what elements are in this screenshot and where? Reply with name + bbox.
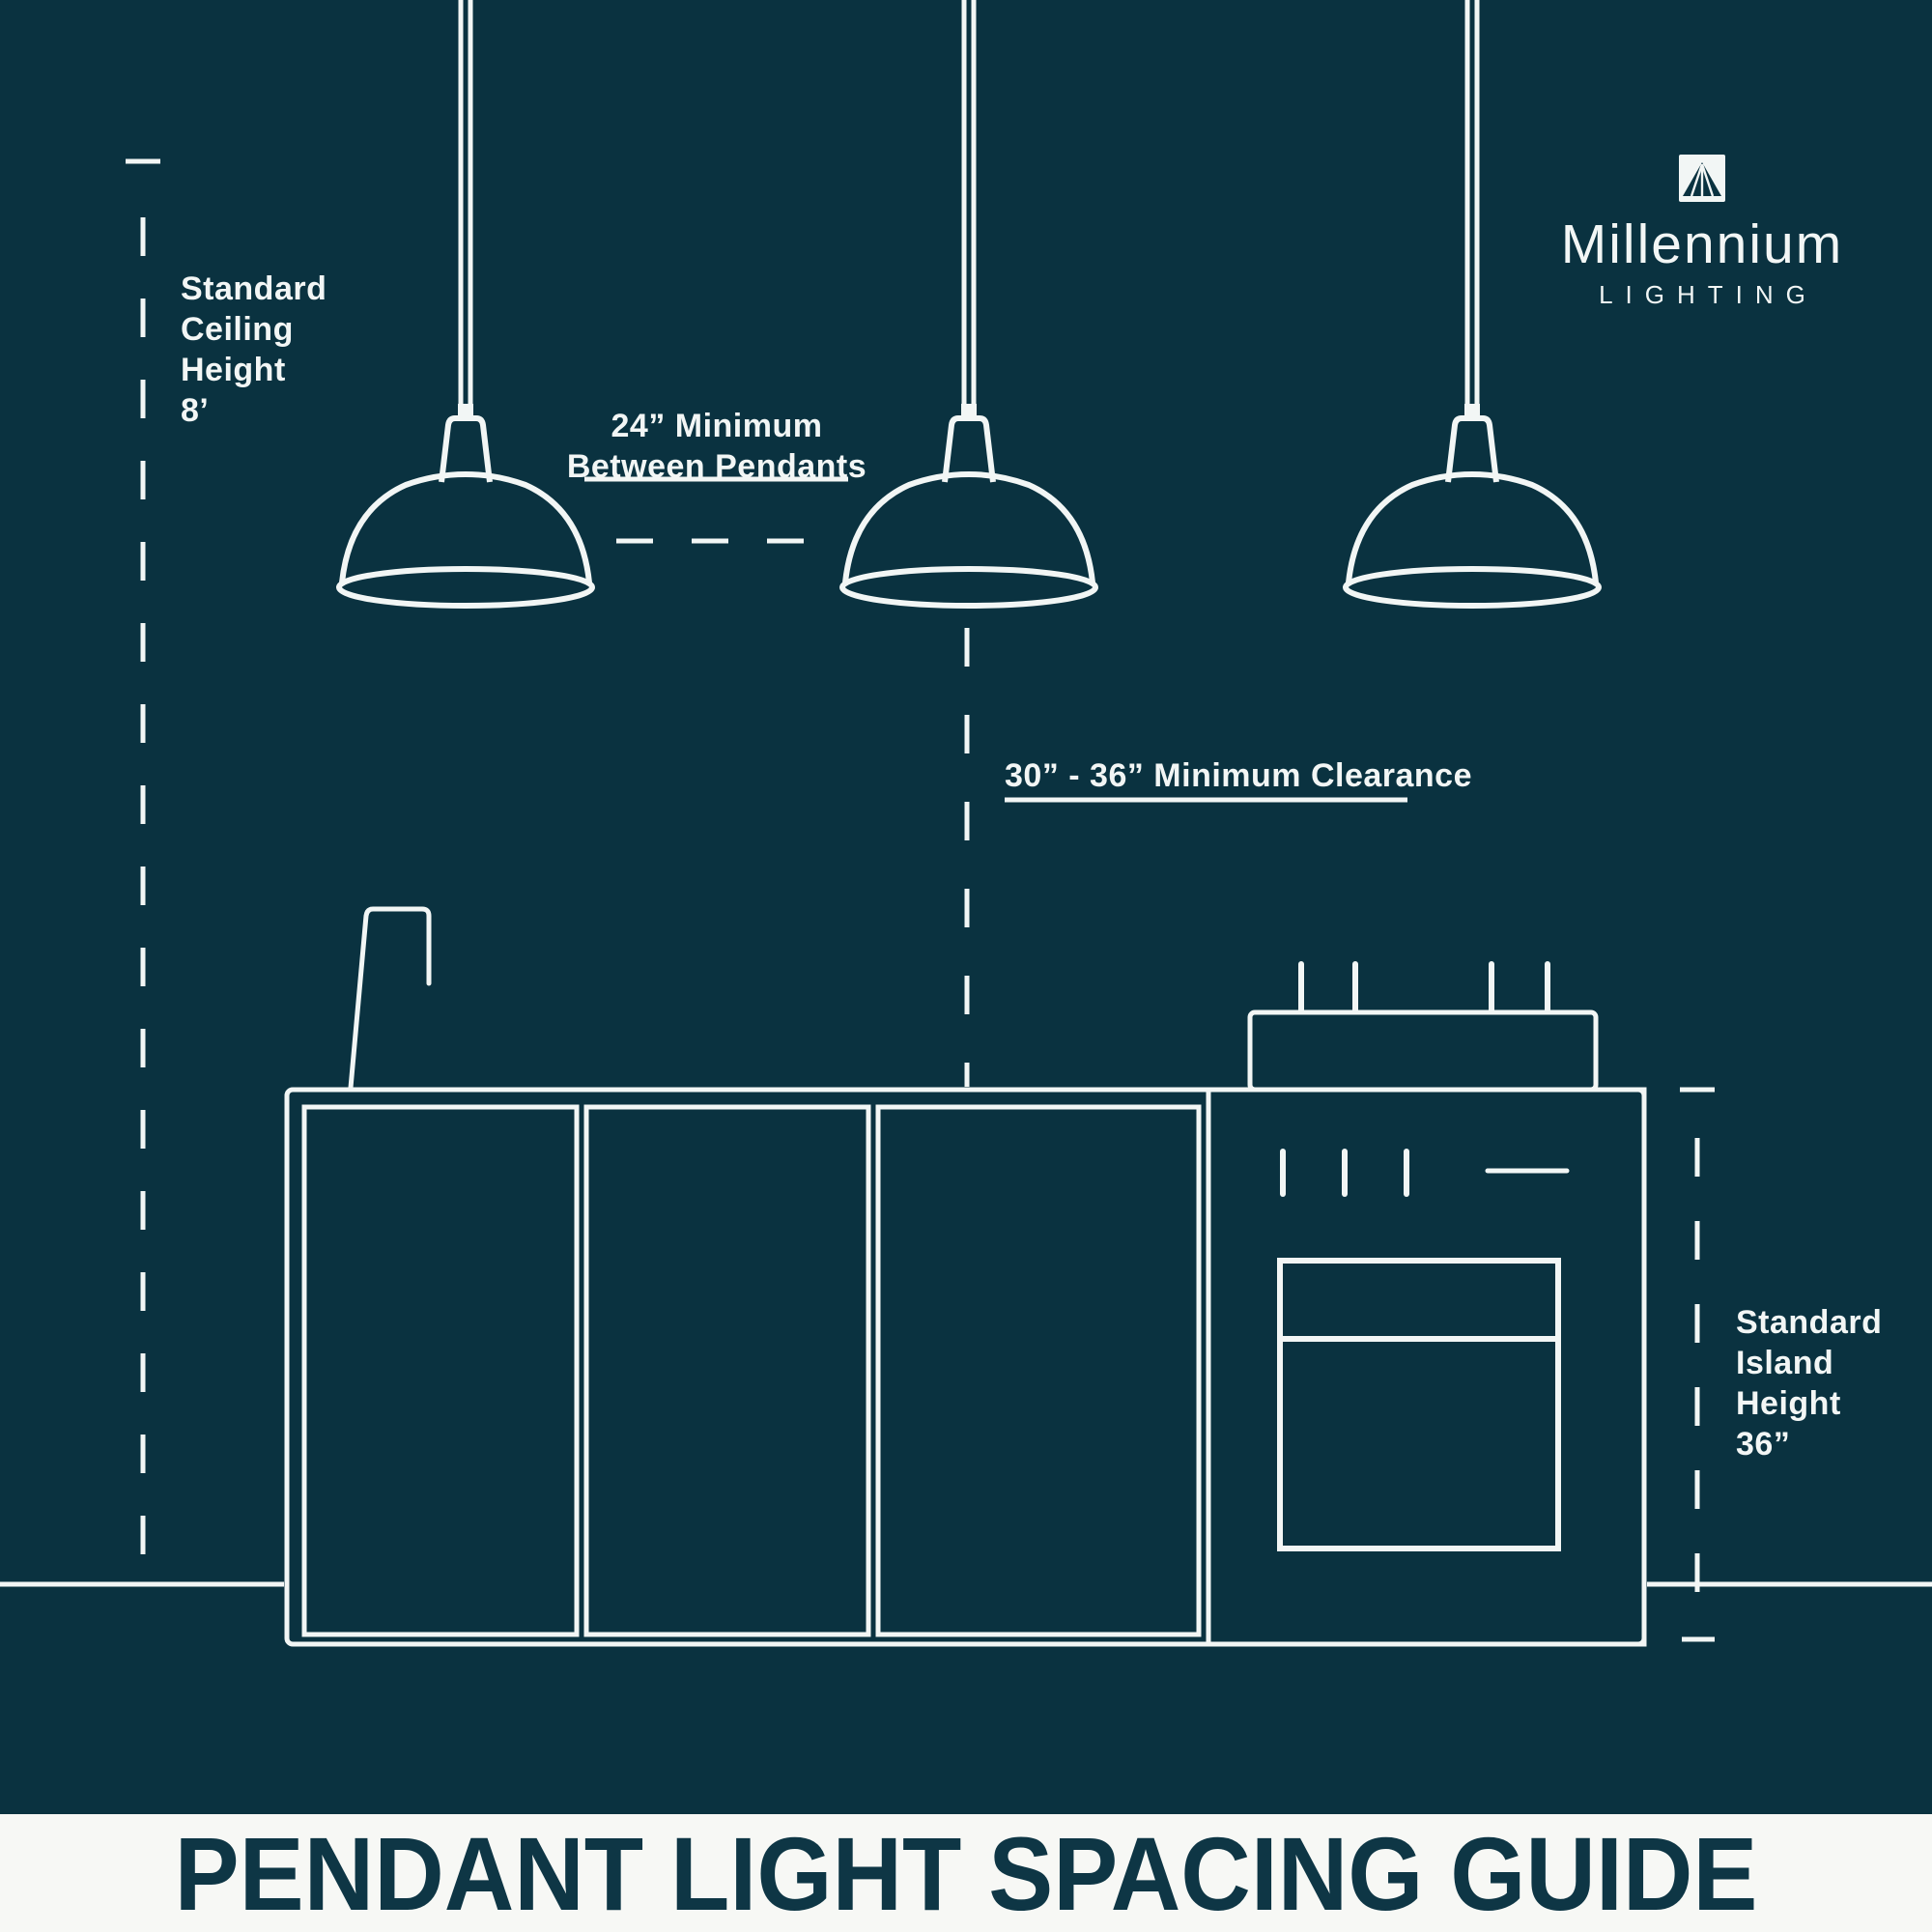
pendant-spacing-line: Between Pendants xyxy=(567,446,867,487)
island-height-line: Standard xyxy=(1736,1302,1882,1343)
ceiling-height-line: Ceiling xyxy=(181,309,327,350)
logo-tagline: LIGHTING xyxy=(1538,280,1866,310)
cabinet-panel-1 xyxy=(304,1107,577,1634)
kitchen-island xyxy=(287,1090,1644,1644)
oven-door xyxy=(1280,1261,1558,1548)
page-title: PENDANT LIGHT SPACING GUIDE xyxy=(175,1813,1758,1932)
island-height-value: 36” xyxy=(1736,1424,1882,1464)
pendant-spacing-label: 24” Minimum Between Pendants xyxy=(567,406,867,487)
logo-brand-name: Millennium xyxy=(1538,213,1866,276)
pendant-spacing-infographic: Millennium LIGHTING Standard Ceiling Hei… xyxy=(0,0,1932,1932)
clearance-label: 30” - 36” Minimum Clearance xyxy=(1005,755,1472,796)
stove-section xyxy=(1208,1090,1644,1644)
ceiling-height-label: Standard Ceiling Height 8’ xyxy=(181,269,327,431)
cooktop xyxy=(1250,964,1596,1090)
pendant-spacing-line: 24” Minimum xyxy=(567,406,867,446)
cabinet-panel-3 xyxy=(878,1107,1199,1634)
millennium-beacon-icon xyxy=(1679,155,1725,202)
ceiling-height-value: 8’ xyxy=(181,390,327,431)
island-height-line: Height xyxy=(1736,1383,1882,1424)
footer-banner: PENDANT LIGHT SPACING GUIDE xyxy=(0,1814,1932,1932)
clearance-text: 30” - 36” Minimum Clearance xyxy=(1005,755,1472,796)
cabinet-panel-2 xyxy=(586,1107,868,1634)
pendant-lamp-middle xyxy=(842,0,1095,606)
island-height-label: Standard Island Height 36” xyxy=(1736,1302,1882,1464)
pendant-lamp-left xyxy=(339,0,592,606)
ceiling-height-line: Standard xyxy=(181,269,327,309)
ceiling-height-measure xyxy=(126,161,160,1584)
island-height-measure xyxy=(1680,1090,1715,1639)
brand-logo: Millennium LIGHTING xyxy=(1538,155,1866,310)
ceiling-height-line: Height xyxy=(181,350,327,390)
stove-front xyxy=(1280,1151,1567,1548)
island-height-line: Island xyxy=(1736,1343,1882,1383)
faucet xyxy=(351,909,429,1088)
